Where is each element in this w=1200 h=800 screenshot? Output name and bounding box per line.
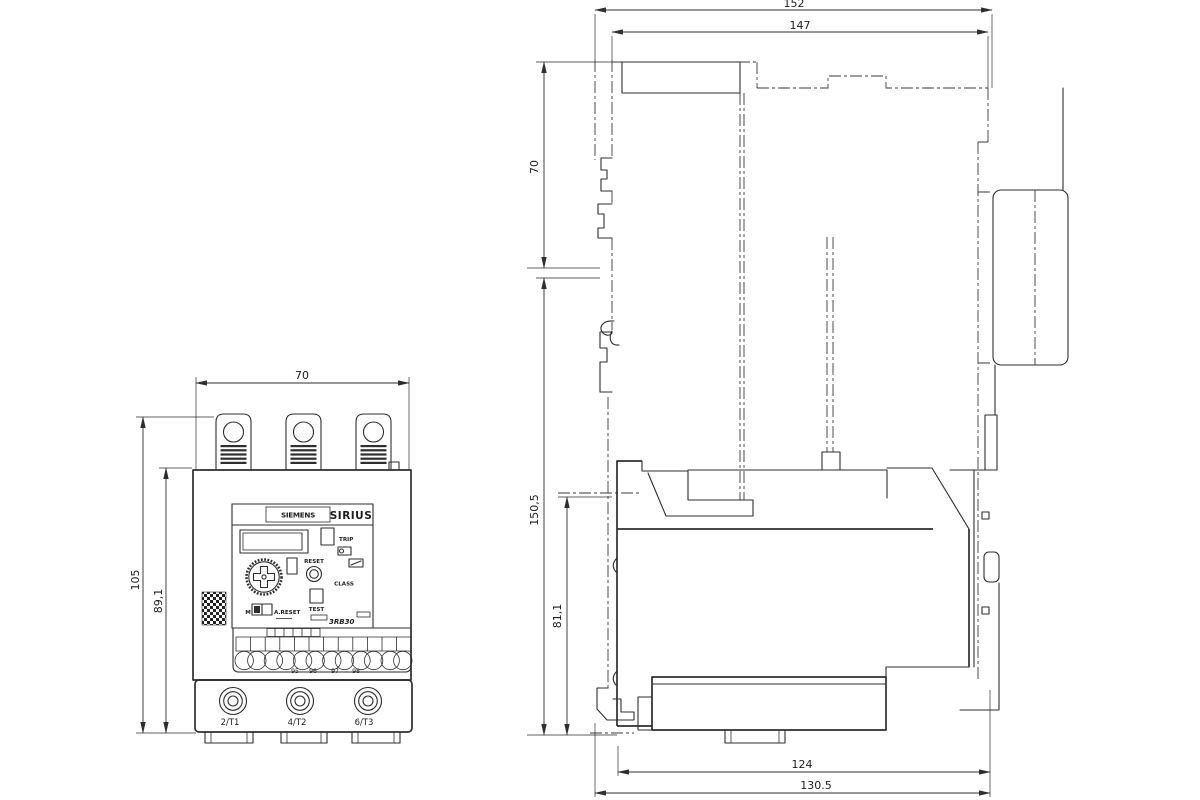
model-label: 3RB30 [329, 618, 354, 626]
dim-label-147: 147 [790, 19, 811, 32]
vent-slots [221, 445, 387, 464]
dim-label-front-height: 105 [129, 570, 142, 591]
aux-terminal-97: 97 [331, 668, 339, 675]
dim-label-130-5: 130.5 [800, 779, 832, 792]
front-aux-terminal-strip: 95 96 97 98 [233, 628, 412, 675]
front-dimensions: 70 105 89,1 [129, 369, 409, 733]
main-terminal-6t3: 6/T3 [355, 718, 374, 728]
dim-front-height: 105 [129, 417, 214, 733]
reset-button[interactable] [307, 567, 322, 582]
technical-drawing: SIEMENS SIRIUS TRIP RESET [0, 0, 1200, 800]
tab-slot [287, 558, 297, 574]
reset-label: RESET [304, 559, 324, 565]
dim-side-depth: 124 [618, 690, 990, 776]
main-terminal-2t1: 2/T1 [221, 718, 240, 728]
aux-terminal-96: 96 [309, 668, 317, 675]
din-rail-clips [598, 158, 619, 392]
lug-hole-1 [224, 422, 244, 442]
front-body [193, 470, 411, 680]
auto-reset-label: A.RESET [274, 610, 301, 616]
dim-label-124: 124 [792, 758, 813, 771]
side-reset-plunger [984, 552, 999, 582]
contactor-bottom-hook [597, 688, 634, 720]
dim-label-150-5: 150,5 [528, 494, 541, 526]
dim-label-81-1: 81,1 [551, 604, 564, 629]
indicator-slot [321, 528, 334, 545]
pill-right [357, 612, 370, 617]
test-label: TEST [309, 607, 325, 613]
dim-side-height: 150,5 [527, 278, 617, 735]
brand-label: SIEMENS [281, 511, 315, 520]
dim-side-top-height: 70 [527, 62, 612, 268]
coil-block [993, 190, 1068, 365]
dim-label-front-width: 70 [295, 369, 309, 382]
front-main-terminals: 2/T1 4/T2 6/T3 [195, 680, 412, 743]
manual-label: M [245, 610, 251, 616]
aux-terminal-95: 95 [291, 668, 299, 675]
test-button[interactable] [310, 589, 323, 603]
series-label: SIRIUS [330, 510, 373, 522]
contactor-top-block [622, 62, 740, 93]
drawing-canvas: SIEMENS SIRIUS TRIP RESET [0, 0, 1200, 800]
trip-label: TRIP [339, 537, 353, 543]
setting-window [240, 530, 308, 553]
mounting-feet [205, 732, 400, 743]
side-relay-outline [613, 415, 999, 743]
front-top-terminals [216, 414, 399, 470]
dim-side-relay-height: 81,1 [551, 497, 612, 735]
side-view: 152 147 70 150,5 [527, 0, 1068, 797]
front-view: SIEMENS SIRIUS TRIP RESET [129, 369, 412, 743]
lug-hole-2 [294, 422, 314, 442]
dim-label-side-70: 70 [528, 160, 541, 174]
datamatrix-code [202, 592, 226, 625]
trip-switch[interactable] [338, 547, 351, 555]
current-setting-dial[interactable] [247, 560, 282, 595]
main-terminal-4t2: 4/T2 [288, 718, 307, 728]
clamp-openings [235, 651, 412, 669]
relay-foot [725, 730, 785, 743]
terminal-screw-2 [287, 688, 314, 715]
dim-front-body-height: 89,1 [152, 468, 192, 733]
side-contactor-outline [558, 60, 1068, 733]
front-faceplate: SIEMENS SIRIUS TRIP RESET [232, 504, 373, 628]
dim-label-front-body-height: 89,1 [152, 589, 165, 614]
dim-side-width: 147 [612, 19, 988, 88]
dim-side-overall-width: 152 [595, 0, 992, 88]
relay-bottom-section [652, 677, 886, 730]
dim-label-152: 152 [784, 0, 805, 10]
stop-symbol [349, 559, 363, 567]
terminal-screw-1 [220, 688, 247, 715]
lug-hole-3 [364, 422, 384, 442]
reset-mode-slider[interactable] [252, 604, 272, 615]
class-label: CLASS [334, 582, 354, 588]
terminal-screw-3 [355, 688, 382, 715]
relay-rear-tab [985, 415, 997, 470]
pill-left [311, 615, 327, 620]
aux-terminal-98: 98 [352, 668, 360, 675]
